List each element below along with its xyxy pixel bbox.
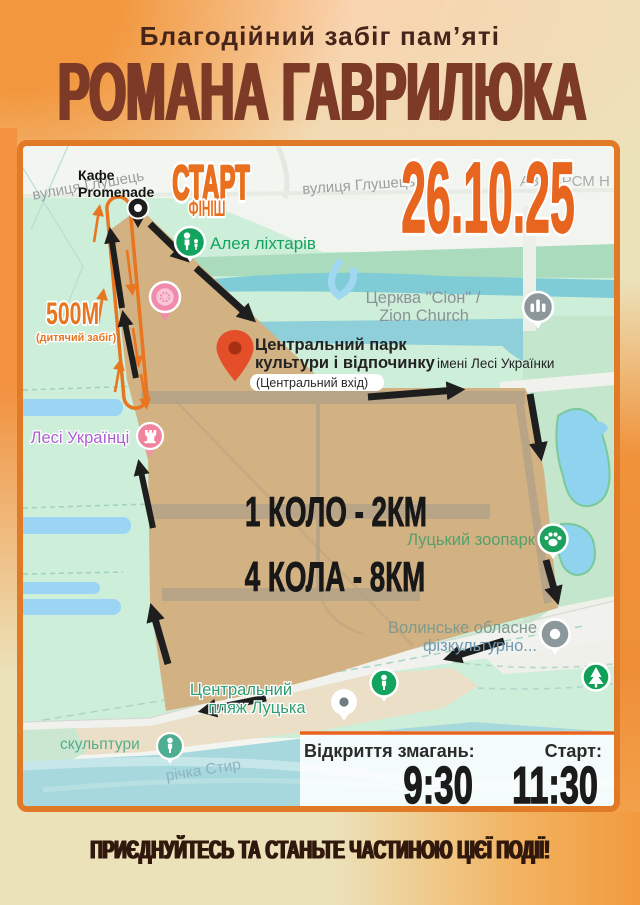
svg-text:11:30: 11:30 — [512, 757, 598, 806]
svg-text:(Центральний вхід): (Центральний вхід) — [256, 376, 368, 390]
svg-text:пляж Луцька: пляж Луцька — [208, 699, 306, 717]
svg-text:культури і відпочинку: культури і відпочинку — [255, 354, 436, 372]
svg-text:26.10.25: 26.10.25 — [401, 146, 575, 254]
svg-text:Центральний парк: Центральний парк — [255, 336, 407, 354]
svg-text:фізкультурно...: фізкультурно... — [423, 637, 537, 655]
svg-text:500М: 500М — [46, 296, 99, 331]
svg-text:1 КОЛО - 2КМ: 1 КОЛО - 2КМ — [245, 488, 427, 535]
svg-text:Волинське обласне: Волинське обласне — [388, 619, 537, 637]
svg-text:(дитячий забіг): (дитячий забіг) — [36, 332, 117, 344]
svg-text:Луцький зоопарк: Луцький зоопарк — [407, 531, 536, 549]
svg-text:скульптури: скульптури — [60, 736, 140, 753]
svg-text:Лесі Українці: Лесі Українці — [31, 429, 130, 447]
svg-text:імені Лесі Українки: імені Лесі Українки — [437, 356, 554, 371]
svg-text:Алея ліхтарів: Алея ліхтарів — [210, 234, 316, 253]
svg-text:Promenade: Promenade — [78, 184, 154, 200]
svg-text:Центральний: Центральний — [190, 681, 292, 699]
svg-text:Церква "Сіон" /: Церква "Сіон" / — [366, 289, 481, 307]
svg-text:4 КОЛА - 8КМ: 4 КОЛА - 8КМ — [245, 553, 425, 600]
svg-text:Zion Church: Zion Church — [379, 307, 469, 325]
svg-text:ФІНІШ: ФІНІШ — [189, 196, 226, 221]
svg-text:Кафе: Кафе — [78, 167, 115, 183]
svg-text:9:30: 9:30 — [403, 757, 473, 806]
